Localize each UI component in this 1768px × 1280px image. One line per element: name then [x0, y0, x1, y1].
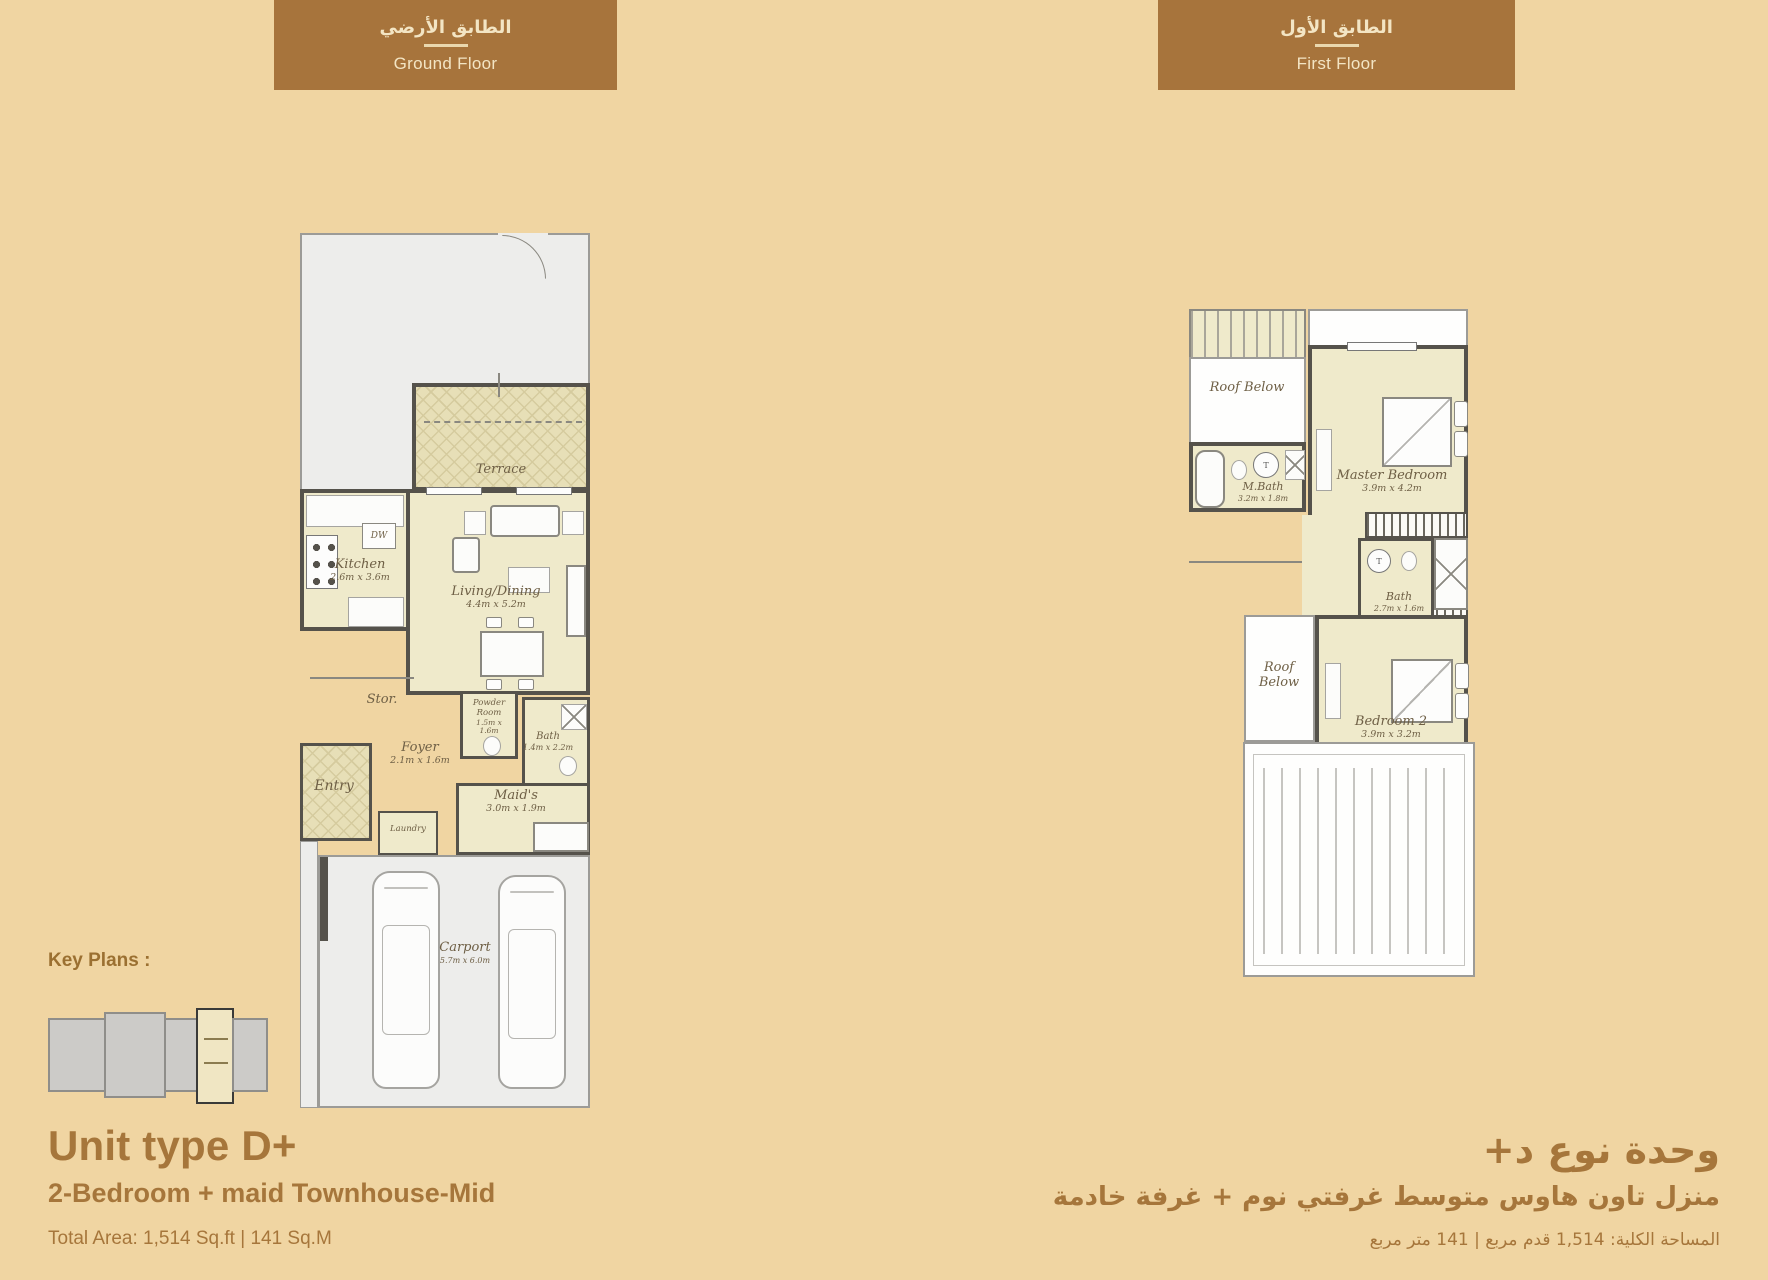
- label-foyer: Foyer 2.1m x 1.6m: [390, 741, 450, 767]
- ground-floor-plan: Terrace DW Kitchen 2.6m x 3.6m: [300, 233, 592, 1110]
- header-divider: [424, 44, 468, 47]
- unit-title-arabic: وحدة نوع د+: [1483, 1128, 1720, 1172]
- label-roof-below-1: Roof Below: [1207, 381, 1287, 396]
- car: [372, 871, 440, 1089]
- dining-chair: [518, 679, 534, 690]
- label-bedroom-2: Bedroom 2 3.9m x 3.2m: [1355, 715, 1427, 741]
- sink: T: [1367, 549, 1391, 573]
- car-hood-line: [384, 887, 428, 889]
- room-master-bedroom: [1308, 345, 1468, 522]
- dishwasher: DW: [362, 523, 396, 549]
- maids-bed: [533, 822, 589, 852]
- living-window: [516, 487, 572, 495]
- first-floor-plan: Master Bedroom 3.9m x 4.2m Roof Below T …: [1189, 309, 1477, 977]
- first-floor-title-english: First Floor: [1297, 55, 1377, 72]
- label-carport: Carport 5.7m x 6.0m: [439, 941, 491, 965]
- bathtub: [1195, 450, 1225, 508]
- brochure-page: الطابق الأرضي Ground Floor الطابق الأول …: [0, 0, 1768, 1280]
- ground-floor-title-english: Ground Floor: [394, 55, 498, 72]
- car-cabin: [508, 929, 556, 1039]
- side-table-left: [464, 511, 486, 535]
- side-table-right: [562, 511, 584, 535]
- wardrobe: [1365, 512, 1468, 538]
- key-plan-unit-detail: [204, 1038, 228, 1040]
- sink: T: [1253, 452, 1279, 478]
- label-m-bath: M.Bath 3.2m x 1.8m: [1238, 481, 1288, 503]
- label-bath-gf: Bath 1.4m x 2.2m: [523, 731, 573, 752]
- dresser: [1325, 663, 1341, 719]
- first-floor-header: الطابق الأول First Floor: [1158, 0, 1515, 90]
- label-maids: Maid's 3.0m x 1.9m: [486, 789, 546, 815]
- key-plan-highlighted-unit: [196, 1008, 234, 1104]
- bed-pillows: [1455, 663, 1469, 719]
- carport-wall: [320, 857, 328, 941]
- label-store: Stor.: [367, 693, 398, 708]
- unit-total-area-english: Total Area: 1,514 Sq.ft | 141 Sq.M: [48, 1228, 332, 1250]
- key-plan-building: [48, 1018, 106, 1092]
- pergola-slats: [1263, 768, 1457, 954]
- label-kitchen: Kitchen 2.6m x 3.6m: [330, 558, 390, 584]
- dining-table: [480, 631, 544, 677]
- shower: [1434, 538, 1468, 610]
- stair-landing-line: [310, 677, 414, 679]
- label-laundry: Laundry: [390, 825, 426, 835]
- toilet: [1401, 551, 1417, 571]
- toilet: [1231, 460, 1247, 480]
- living-window: [426, 487, 482, 495]
- dining-chair: [518, 617, 534, 628]
- pergola-roof: [1243, 742, 1475, 977]
- key-plans-label: Key Plans :: [48, 950, 150, 972]
- key-plan-building: [164, 1018, 198, 1092]
- car-hood-line: [510, 891, 554, 893]
- ground-floor-title-arabic: الطابق الأرضي: [379, 19, 511, 37]
- tv-unit: [566, 565, 586, 637]
- side-walkway: [300, 841, 318, 1108]
- terrace-north-mark: [498, 373, 500, 397]
- label-entry: Entry: [314, 778, 353, 794]
- hallway: [1302, 515, 1366, 615]
- roof-below-upper: [1189, 357, 1306, 444]
- ground-floor-header: الطابق الأرضي Ground Floor: [274, 0, 617, 90]
- dresser: [1316, 429, 1332, 491]
- dining-chair: [486, 617, 502, 628]
- unit-total-area-arabic: المساحة الكلية: 1,514 قدم مربع | 141 متر…: [1370, 1230, 1720, 1250]
- dishwasher-label: DW: [371, 531, 387, 541]
- car-cabin: [382, 925, 430, 1035]
- unit-subtitle-english: 2-Bedroom + maid Townhouse-Mid: [48, 1178, 495, 1209]
- label-living-dining: Living/Dining 4.4m x 5.2m: [451, 585, 540, 611]
- label-powder-room: Powder Room 1.5m x 1.6m: [467, 699, 511, 736]
- bed-pillows: [1454, 401, 1468, 457]
- armchair: [452, 537, 480, 573]
- label-terrace: Terrace: [476, 463, 527, 478]
- unit-title-english: Unit type D+: [48, 1122, 297, 1170]
- key-plan: [48, 1008, 270, 1108]
- toilet: [559, 756, 577, 776]
- sofa: [490, 505, 560, 537]
- label-roof-below-2: Roof Below: [1247, 661, 1311, 691]
- shower: [561, 704, 587, 730]
- bed: [1382, 397, 1452, 467]
- header-divider: [1315, 44, 1359, 47]
- dining-chair: [486, 679, 502, 690]
- master-window: [1347, 342, 1417, 351]
- terrace-pergola-dashed-line: [424, 421, 582, 423]
- unit-subtitle-arabic: منزل تاون هاوس متوسط غرفتي نوم + غرفة خا…: [1053, 1182, 1720, 1212]
- kitchen-island: [348, 597, 404, 627]
- first-floor-title-arabic: الطابق الأول: [1280, 19, 1393, 37]
- car: [498, 875, 566, 1089]
- label-master-bedroom: Master Bedroom 3.9m x 4.2m: [1337, 469, 1448, 495]
- key-plan-building: [104, 1012, 166, 1098]
- key-plan-building: [232, 1018, 268, 1092]
- stair-landing-line: [1189, 561, 1306, 563]
- toilet: [483, 736, 501, 756]
- label-bath-ff: Bath 2.7m x 1.6m: [1374, 591, 1424, 613]
- key-plan-unit-detail: [204, 1062, 228, 1064]
- shaft: [1285, 450, 1305, 480]
